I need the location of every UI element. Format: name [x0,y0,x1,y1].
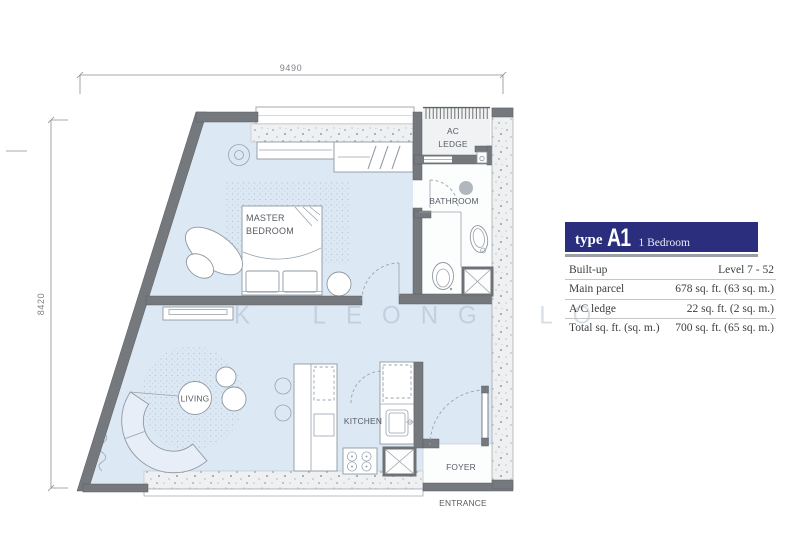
kitchen-label: KITCHEN [344,416,382,426]
ac-ledge-label2: LEDGE [438,139,468,149]
unit-info-panel: type A1 1 Bedroom Built-up Level 7 - 52 … [565,222,776,338]
shower-drain [459,181,473,195]
row-label: Built-up [565,264,607,276]
bathroom-label: BATHROOM [429,196,478,206]
table-row: A/C ledge 22 sq. ft. (2 sq. m.) [565,300,776,320]
row-value: 700 sq. ft. (65 sq. m.) [675,322,776,334]
kitchen-island [294,364,337,471]
side-table [216,367,236,387]
bedside-table [327,272,351,296]
exterior-wall [492,108,513,489]
unit-type-header: type A1 1 Bedroom [565,222,758,252]
row-value: 22 sq. ft. (2 sq. m.) [687,303,776,315]
kitchen-counter [380,362,414,444]
table-row: Total sq. ft. (sq. m.) 700 sq. ft. (65 s… [565,319,776,338]
table-row: Main parcel 678 sq. ft. (63 sq. m.) [565,280,776,300]
unit-type-name: 1 Bedroom [638,237,689,249]
row-label: Total sq. ft. (sq. m.) [565,322,660,334]
ac-ledge-label: AC [447,126,459,136]
side-table [222,387,246,411]
row-label: A/C ledge [565,303,616,315]
row-value: 678 sq. ft. (63 sq. m.) [675,283,776,295]
header-rule [565,254,758,257]
unit-info-table: Built-up Level 7 - 52 Main parcel 678 sq… [565,261,776,338]
living-label: LIVING [181,394,210,404]
row-value: Level 7 - 52 [718,264,776,276]
dimension-left-label: 8420 [36,293,46,315]
stove [343,448,377,474]
master-bedroom-label2: BEDROOM [246,226,294,236]
dimension-top-label: 9490 [280,63,302,73]
tv-console [163,307,233,320]
ac-unit [477,152,487,163]
unit-code: A1 [607,227,630,249]
foyer-label: FOYER [446,462,476,472]
entrance-door-leaf [482,388,488,445]
entrance-label: ENTRANCE [439,498,487,508]
type-label: type [575,232,603,249]
row-label: Main parcel [565,283,624,295]
table-row: Built-up Level 7 - 52 [565,261,776,281]
floor-plan-page: 9490 8420 [0,0,800,546]
toilet [433,263,454,291]
wardrobe-shelf [257,142,334,159]
master-bedroom-label: MASTER [246,213,285,223]
